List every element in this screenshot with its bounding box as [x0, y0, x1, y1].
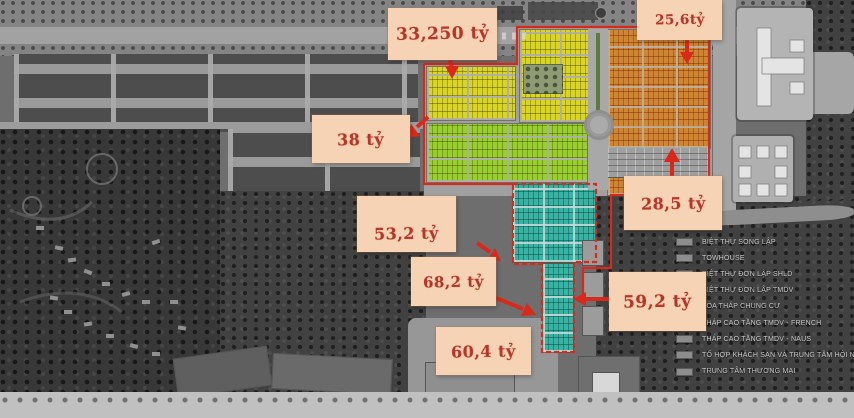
arrow-25-6: [680, 40, 694, 64]
price-label-38: 38 tỷ: [312, 115, 410, 163]
price-label-25-6: 25,6tỷ: [637, 0, 722, 40]
price-label-60-4: 60,4 tỷ: [436, 327, 531, 375]
price-text-38: 38 tỷ: [337, 129, 384, 149]
arrow-28-5: [664, 148, 680, 176]
park-paths-and-villas: [10, 154, 186, 356]
price-label-59-2: 59,2 tỷ: [609, 272, 706, 331]
price-text-53-2: 53,2 tỷ: [374, 223, 439, 243]
price-label-33250: 33,250 tỷ: [388, 8, 497, 60]
price-label-53-2: 53,2 tỷ: [357, 196, 456, 252]
civic-complex-details: [739, 28, 804, 196]
price-label-28-5: 28,5 tỷ: [624, 176, 722, 230]
price-text-68-2: 68,2 tỷ: [423, 272, 484, 291]
price-text-60-4: 60,4 tỷ: [451, 341, 516, 361]
price-text-25-6: 25,6tỷ: [654, 12, 704, 29]
arrow-68-2: [496, 298, 536, 316]
masterplan-aerial-map: 33,250 tỷ 25,6tỷ 38 tỷ 53,2 tỷ 68,2 tỷ 2…: [0, 0, 854, 418]
price-text-28-5: 28,5 tỷ: [640, 193, 705, 213]
price-text-59-2: 59,2 tỷ: [623, 291, 692, 312]
arrow-59-2: [573, 292, 609, 306]
price-label-68-2: 68,2 tỷ: [411, 257, 496, 306]
price-text-33250: 33,250 tỷ: [396, 23, 490, 45]
